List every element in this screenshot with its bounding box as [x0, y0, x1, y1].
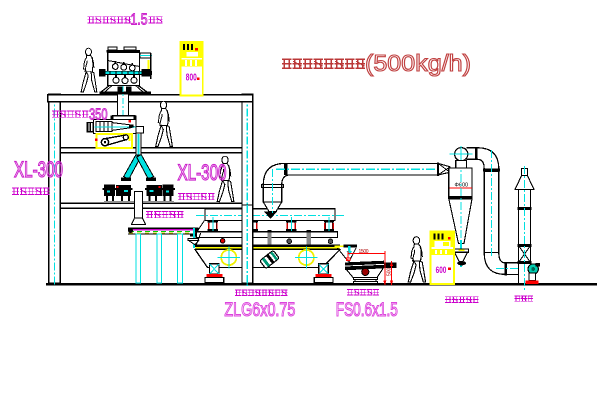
svg-text:(500kg/h): (500kg/h)	[365, 50, 471, 76]
svg-text:1.5: 1.5	[131, 12, 148, 29]
svg-text:800: 800	[186, 71, 197, 83]
svg-text:ZLG6x0.75: ZLG6x0.75	[224, 299, 295, 321]
svg-text:500: 500	[387, 267, 393, 276]
svg-text:1500: 1500	[359, 249, 369, 255]
svg-text:XL-300: XL-300	[14, 157, 63, 182]
svg-text:600: 600	[436, 265, 447, 276]
svg-text:350: 350	[89, 107, 108, 124]
svg-text:FS0.6x1.5: FS0.6x1.5	[336, 299, 398, 321]
svg-text:XL-300: XL-300	[178, 160, 227, 185]
